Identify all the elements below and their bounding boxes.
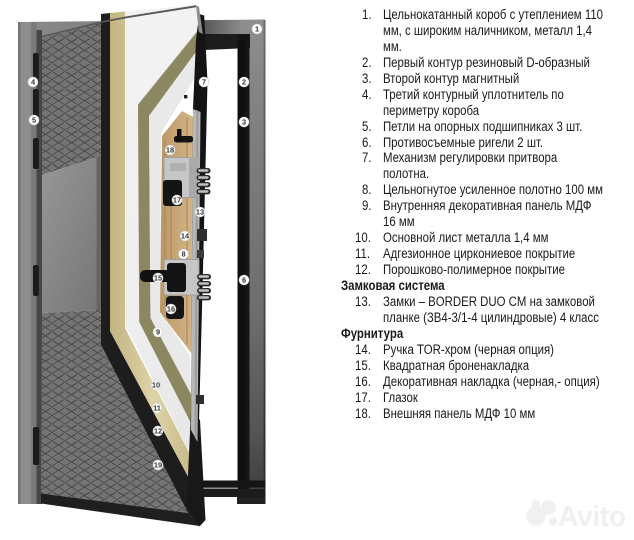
svg-text:6: 6 (242, 276, 246, 285)
svg-text:10: 10 (152, 381, 160, 390)
svg-text:2: 2 (242, 78, 246, 87)
svg-text:9: 9 (156, 328, 160, 337)
svg-text:Avito: Avito (558, 501, 626, 533)
svg-text:18: 18 (166, 146, 174, 155)
svg-text:17: 17 (173, 196, 181, 205)
svg-text:8: 8 (181, 250, 185, 259)
svg-text:12: 12 (154, 427, 162, 436)
svg-text:7: 7 (202, 78, 206, 87)
svg-text:3: 3 (242, 118, 246, 127)
svg-text:13: 13 (196, 208, 204, 217)
svg-text:14: 14 (181, 232, 190, 241)
svg-text:11: 11 (153, 404, 161, 413)
svg-text:16: 16 (167, 305, 175, 314)
svg-text:19: 19 (154, 461, 162, 470)
svg-text:15: 15 (154, 274, 162, 283)
svg-text:1: 1 (255, 25, 259, 34)
svg-text:5: 5 (32, 116, 36, 125)
